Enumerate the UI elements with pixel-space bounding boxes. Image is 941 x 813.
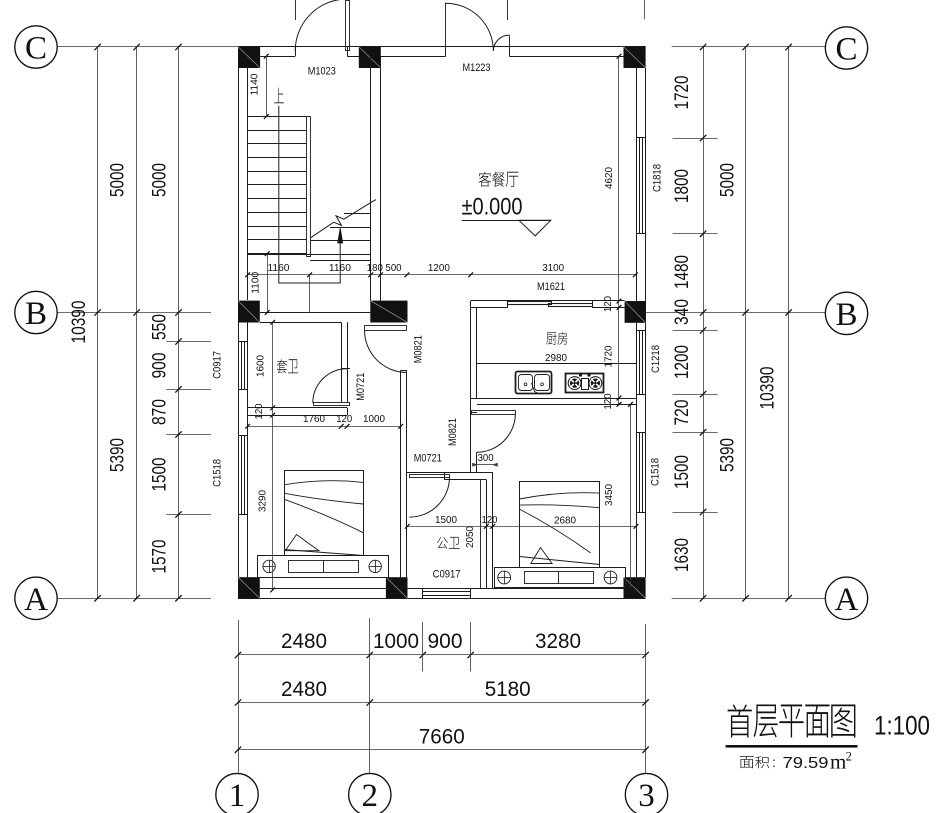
svg-text:1500: 1500 bbox=[672, 455, 693, 489]
svg-text:4620: 4620 bbox=[604, 167, 615, 189]
svg-text:1800: 1800 bbox=[672, 169, 693, 203]
svg-text:1200: 1200 bbox=[672, 345, 693, 379]
svg-text:3: 3 bbox=[638, 778, 655, 813]
svg-text:2: 2 bbox=[846, 749, 853, 764]
svg-text:7660: 7660 bbox=[419, 726, 465, 749]
svg-text:900: 900 bbox=[150, 353, 171, 379]
svg-text:M0721: M0721 bbox=[355, 373, 367, 401]
svg-text:5390: 5390 bbox=[718, 438, 739, 472]
svg-text:3290: 3290 bbox=[258, 490, 269, 512]
svg-text:1500: 1500 bbox=[150, 458, 171, 492]
svg-text:C0917: C0917 bbox=[212, 351, 224, 379]
svg-text:2680: 2680 bbox=[554, 516, 576, 527]
svg-text:1760: 1760 bbox=[303, 414, 325, 425]
svg-text:1160: 1160 bbox=[329, 263, 351, 274]
svg-text:900: 900 bbox=[428, 630, 463, 653]
svg-text:120: 120 bbox=[603, 393, 614, 409]
svg-text:2480: 2480 bbox=[281, 678, 327, 701]
svg-text:79.59: 79.59 bbox=[783, 755, 829, 772]
svg-text:5180: 5180 bbox=[485, 678, 531, 701]
svg-text:120: 120 bbox=[603, 296, 614, 312]
svg-text:340: 340 bbox=[672, 299, 693, 325]
svg-text:2: 2 bbox=[362, 778, 379, 813]
svg-text:1140: 1140 bbox=[250, 73, 261, 95]
svg-text:720: 720 bbox=[672, 400, 693, 426]
svg-text:C1518: C1518 bbox=[212, 459, 224, 487]
svg-text:10390: 10390 bbox=[758, 367, 779, 410]
svg-text:1600: 1600 bbox=[256, 355, 267, 377]
svg-text:1: 1 bbox=[229, 778, 246, 813]
svg-text:1720: 1720 bbox=[672, 76, 693, 110]
svg-text:5000: 5000 bbox=[150, 163, 171, 197]
svg-text::: : bbox=[772, 755, 776, 770]
svg-text:550: 550 bbox=[150, 314, 171, 340]
svg-text:m: m bbox=[830, 750, 846, 774]
svg-text:B: B bbox=[835, 297, 857, 333]
svg-text:500: 500 bbox=[386, 263, 402, 274]
svg-text:M1621: M1621 bbox=[537, 281, 565, 293]
svg-text:A: A bbox=[24, 582, 48, 618]
svg-text:3450: 3450 bbox=[604, 484, 615, 506]
svg-text:B: B bbox=[25, 296, 47, 332]
svg-text:1:100: 1:100 bbox=[874, 711, 930, 741]
svg-text:M0721: M0721 bbox=[414, 453, 442, 465]
svg-text:2480: 2480 bbox=[281, 630, 327, 653]
svg-text:C1518: C1518 bbox=[650, 458, 662, 486]
svg-text:5000: 5000 bbox=[108, 163, 129, 197]
svg-text:1570: 1570 bbox=[150, 540, 171, 574]
svg-text:C: C bbox=[25, 31, 47, 67]
svg-text:1000: 1000 bbox=[373, 630, 419, 653]
svg-text:3280: 3280 bbox=[535, 630, 581, 653]
svg-text:1000: 1000 bbox=[363, 414, 385, 425]
svg-text:120: 120 bbox=[336, 414, 352, 425]
svg-text:180: 180 bbox=[367, 263, 383, 274]
svg-text:5390: 5390 bbox=[108, 438, 129, 472]
svg-text:5000: 5000 bbox=[718, 163, 739, 197]
svg-text:M1223: M1223 bbox=[463, 62, 491, 74]
svg-text:120: 120 bbox=[482, 515, 498, 526]
svg-text:300: 300 bbox=[478, 453, 494, 464]
svg-text:±0.000: ±0.000 bbox=[462, 194, 523, 221]
svg-text:C1218: C1218 bbox=[650, 345, 662, 373]
svg-text:M1023: M1023 bbox=[308, 66, 336, 78]
svg-text:1160: 1160 bbox=[268, 263, 290, 274]
svg-text:3100: 3100 bbox=[542, 263, 564, 274]
svg-text:1480: 1480 bbox=[672, 255, 693, 289]
svg-text:M0821: M0821 bbox=[413, 335, 425, 363]
svg-text:A: A bbox=[835, 582, 859, 618]
svg-text:1720: 1720 bbox=[604, 345, 615, 367]
svg-text:1200: 1200 bbox=[428, 263, 450, 274]
svg-text:2050: 2050 bbox=[465, 526, 476, 548]
svg-text:870: 870 bbox=[150, 399, 171, 425]
svg-text:C0917: C0917 bbox=[433, 569, 461, 581]
svg-text:M0821: M0821 bbox=[447, 418, 459, 446]
svg-text:1630: 1630 bbox=[672, 538, 693, 572]
svg-text:10390: 10390 bbox=[69, 301, 90, 344]
svg-text:2980: 2980 bbox=[545, 353, 567, 364]
svg-text:C1818: C1818 bbox=[652, 164, 664, 192]
svg-text:C: C bbox=[835, 32, 857, 68]
svg-text:120: 120 bbox=[254, 403, 265, 419]
svg-text:1500: 1500 bbox=[435, 515, 457, 526]
